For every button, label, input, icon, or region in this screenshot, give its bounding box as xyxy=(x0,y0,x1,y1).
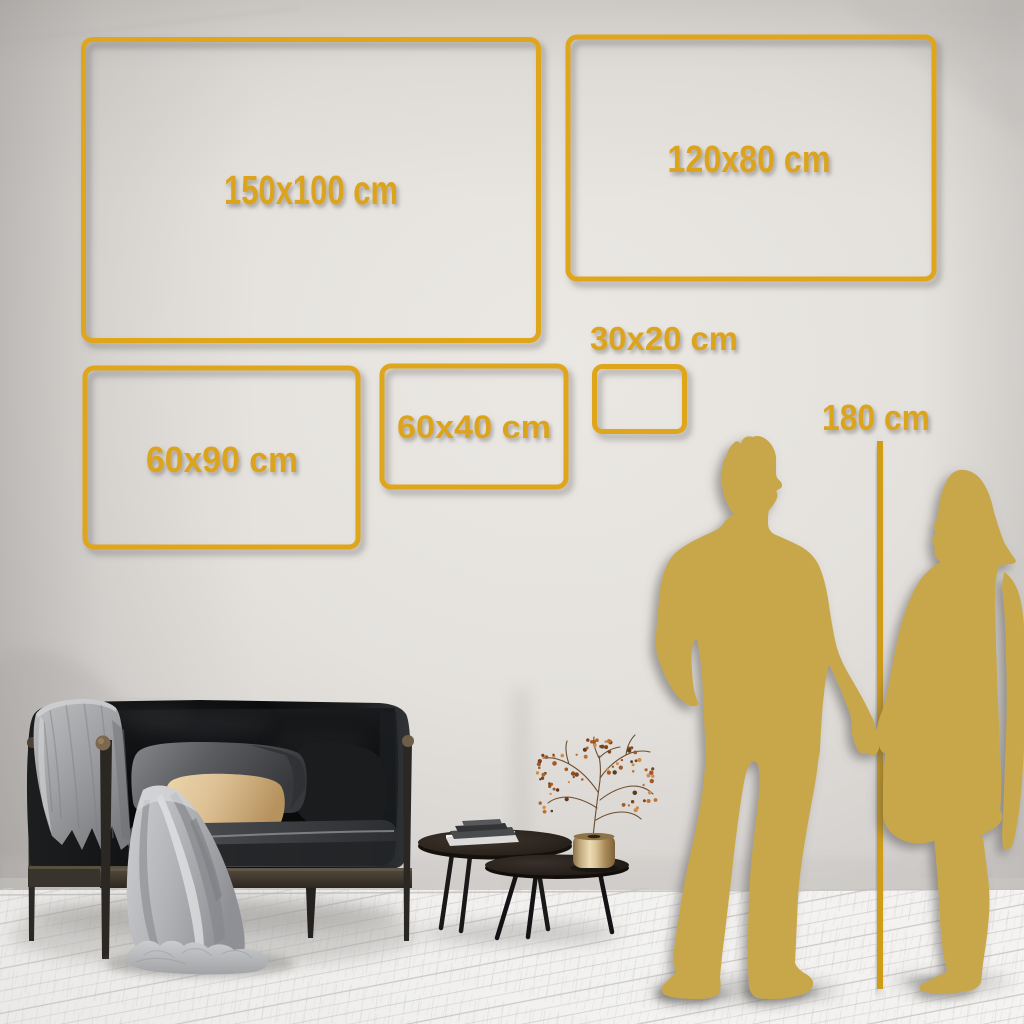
svg-text:120x80 cm: 120x80 cm xyxy=(668,139,831,181)
svg-text:150x100 cm: 150x100 cm xyxy=(224,167,398,213)
svg-text:60x40 cm: 60x40 cm xyxy=(397,409,551,445)
svg-text:180 cm: 180 cm xyxy=(822,397,930,438)
svg-text:60x90 cm: 60x90 cm xyxy=(146,439,298,480)
svg-text:30x20 cm: 30x20 cm xyxy=(590,320,738,357)
